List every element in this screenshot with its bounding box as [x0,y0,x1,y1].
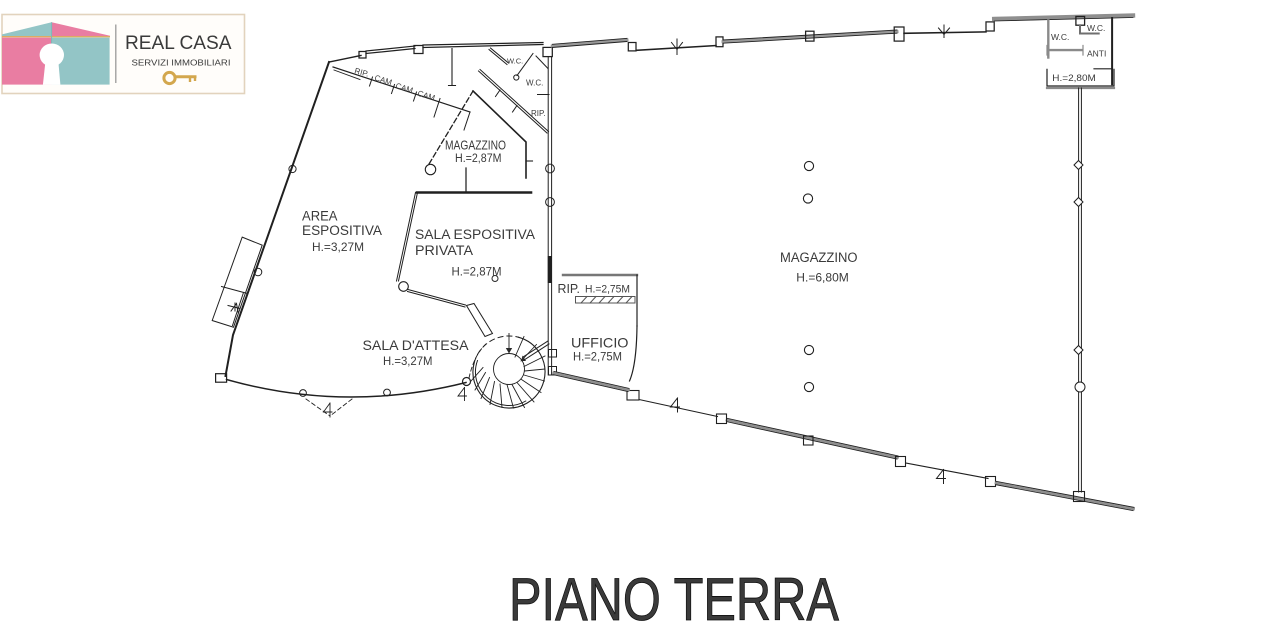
svg-text:W.C.: W.C. [1051,32,1069,42]
svg-text:H.=3,27M: H.=3,27M [383,354,433,368]
svg-text:H.=6,80M: H.=6,80M [796,270,849,284]
svg-text:H.=2,75M: H.=2,75M [573,350,622,364]
svg-text:W.C.: W.C. [1087,23,1105,33]
svg-text:AREA: AREA [302,209,338,224]
svg-text:ESPOSITIVA: ESPOSITIVA [302,223,382,238]
svg-text:H.=2,80M: H.=2,80M [1052,73,1096,84]
svg-text:MAGAZZINO: MAGAZZINO [445,139,506,153]
svg-text:RIP.: RIP. [531,109,546,118]
svg-text:ANTI: ANTI [1087,49,1106,59]
svg-text:UFFICIO: UFFICIO [571,335,629,351]
svg-text:RIP.: RIP. [558,281,581,296]
svg-text:SERVIZI IMMOBILIARI: SERVIZI IMMOBILIARI [132,58,231,67]
svg-text:PIANO TERRA: PIANO TERRA [509,566,839,633]
svg-text:H.=2,75M: H.=2,75M [585,284,630,296]
svg-text:SALA ESPOSITIVA: SALA ESPOSITIVA [415,227,535,242]
svg-text:H.=2,87M: H.=2,87M [455,153,502,165]
svg-text:MAGAZZINO: MAGAZZINO [780,250,858,265]
svg-text:REAL CASA: REAL CASA [125,32,232,54]
svg-text:SALA D'ATTESA: SALA D'ATTESA [363,338,470,353]
svg-text:H.=3,27M: H.=3,27M [312,240,364,254]
svg-text:PRIVATA: PRIVATA [415,243,473,258]
svg-text:W.C.: W.C. [507,57,523,66]
svg-text:W.C.: W.C. [526,79,543,88]
